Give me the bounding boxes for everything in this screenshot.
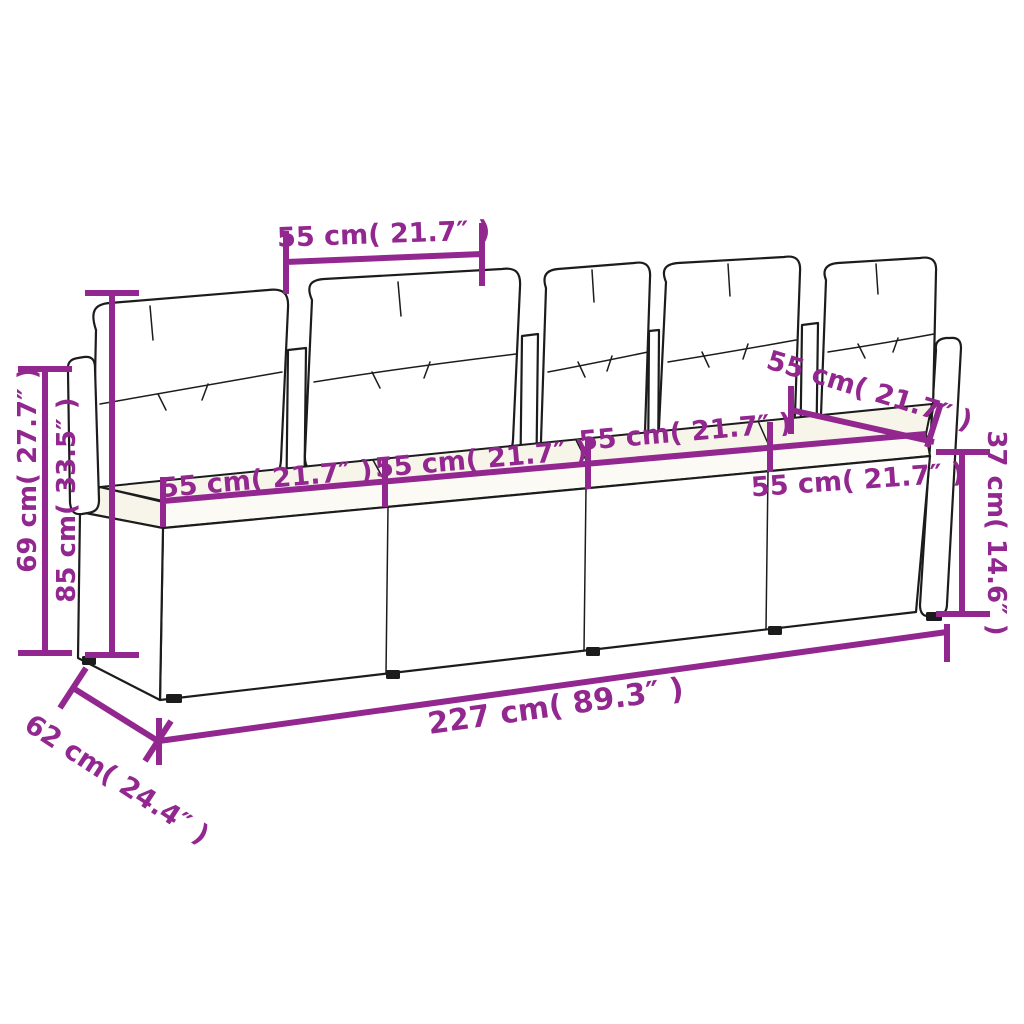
dim-back-cushion-width-label: 55 cm( 21.7″ ) bbox=[277, 215, 491, 253]
dimension-diagram-page: 55 cm( 21.7″ ) 69 cm( 27.7″ ) 85 cm( 33.… bbox=[0, 0, 1024, 1024]
back-cushion-2 bbox=[305, 269, 520, 473]
dim-total-width-label: 227 cm( 89.3″ ) bbox=[426, 671, 686, 742]
base-left-face bbox=[78, 512, 163, 700]
dim-back-height-label: 69 cm( 27.7″ ) bbox=[13, 367, 43, 572]
dim-total-height-label: 85 cm( 33.5″ ) bbox=[52, 397, 82, 602]
sofa-dimension-diagram: 55 cm( 21.7″ ) 69 cm( 27.7″ ) 85 cm( 33.… bbox=[0, 0, 1024, 1024]
dim-seat-depth-label: 62 cm( 24.4″ ) bbox=[19, 709, 215, 851]
dim-seat-height-label: 37 cm( 14.6″ ) bbox=[981, 430, 1011, 635]
